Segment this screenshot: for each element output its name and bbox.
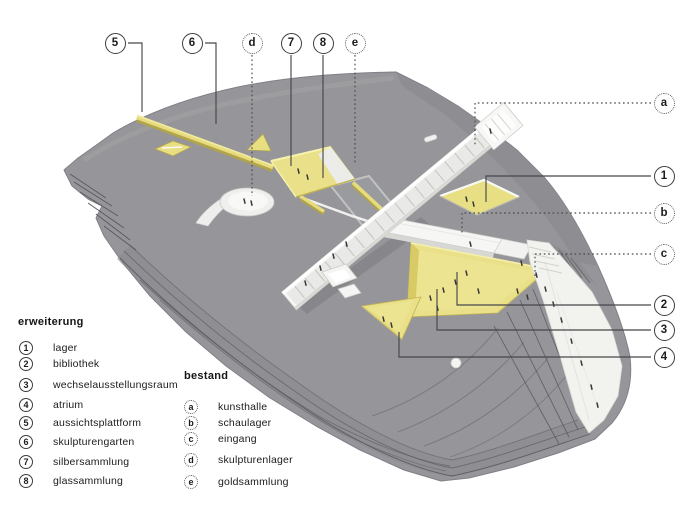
- legend-label-skulpturengarten: skulpturengarten: [53, 436, 134, 448]
- legend-item-silbersammlung: 7silbersammlung: [19, 455, 129, 469]
- legend-item-skulpturenlager: dskulpturenlager: [184, 453, 293, 467]
- callout-3-label: 3: [661, 324, 667, 336]
- legend-item-kunsthalle: akunsthalle: [184, 400, 267, 414]
- legend-label-silbersammlung: silbersammlung: [53, 456, 129, 468]
- callout-5: 5: [105, 33, 126, 54]
- legend-heading-erweiterung: erweiterung: [18, 316, 84, 328]
- legend-key-8: 8: [19, 474, 33, 488]
- callout-b: b: [654, 203, 675, 224]
- callout-c-label: c: [661, 248, 667, 260]
- callout-8: 8: [313, 33, 334, 54]
- legend-key-b: b: [184, 416, 198, 430]
- legend-label-bibliothek: bibliothek: [53, 358, 99, 370]
- callout-6: 6: [182, 33, 203, 54]
- callout-2-label: 2: [661, 299, 667, 311]
- callout-a-label: a: [661, 97, 667, 109]
- legend-key-e: e: [184, 475, 198, 489]
- legend-item-atrium: 4atrium: [19, 398, 83, 412]
- legend-item-lager: 1lager: [19, 341, 77, 355]
- legend-label-atrium: atrium: [53, 399, 83, 411]
- callout-8-label: 8: [320, 37, 326, 49]
- legend-item-bibliothek: 2bibliothek: [19, 357, 99, 371]
- callout-b-label: b: [660, 207, 667, 219]
- callout-5-label: 5: [112, 37, 118, 49]
- legend-item-schaulager: bschaulager: [184, 416, 271, 430]
- callout-c: c: [654, 244, 675, 265]
- callout-2: 2: [654, 295, 675, 316]
- callout-e-label: e: [352, 37, 358, 49]
- legend-key-2: 2: [19, 357, 33, 371]
- callout-d-label: d: [248, 37, 255, 49]
- legend-label-skulpturenlager: skulpturenlager: [218, 454, 293, 466]
- legend-label-eingang: eingang: [218, 433, 257, 445]
- legend-key-5: 5: [19, 416, 33, 430]
- legend-key-4: 4: [19, 398, 33, 412]
- callout-e: e: [345, 33, 366, 54]
- legend-label-wechselausstellungsraum: wechselausstellungsraum: [53, 379, 178, 391]
- legend-label-schaulager: schaulager: [218, 417, 271, 429]
- callout-d: d: [242, 33, 263, 54]
- legend-item-wechselausstellungsraum: 3wechselausstellungsraum: [19, 378, 178, 392]
- legend-key-1: 1: [19, 341, 33, 355]
- legend-label-goldsammlung: goldsammlung: [218, 476, 289, 488]
- legend-item-skulpturengarten: 6skulpturengarten: [19, 435, 134, 449]
- site-diagram: 5 6 d 7 8 e a 1 b c 2 3 4 erweiterung 1l…: [0, 0, 700, 508]
- legend-key-c: c: [184, 432, 198, 446]
- legend-item-goldsammlung: egoldsammlung: [184, 475, 289, 489]
- callout-4-label: 4: [661, 351, 667, 363]
- callout-7-label: 7: [288, 37, 294, 49]
- callout-4: 4: [654, 347, 675, 368]
- legend-item-glassammlung: 8glassammlung: [19, 474, 123, 488]
- callout-a: a: [654, 93, 675, 114]
- axonometric-illustration: [0, 0, 700, 508]
- legend-heading-bestand: bestand: [184, 370, 228, 382]
- legend-key-3: 3: [19, 378, 33, 392]
- callout-6-label: 6: [189, 37, 195, 49]
- legend-label-aussichtsplattform: aussichtsplattform: [53, 417, 141, 429]
- legend-key-a: a: [184, 400, 198, 414]
- legend-key-d: d: [184, 453, 198, 467]
- callout-3: 3: [654, 320, 675, 341]
- legend-label-lager: lager: [53, 342, 77, 354]
- legend-item-eingang: ceingang: [184, 432, 257, 446]
- legend-label-glassammlung: glassammlung: [53, 475, 123, 487]
- callout-1: 1: [654, 166, 675, 187]
- legend-item-aussichtsplattform: 5aussichtsplattform: [19, 416, 141, 430]
- legend-key-6: 6: [19, 435, 33, 449]
- callout-1-label: 1: [661, 170, 667, 182]
- callout-7: 7: [281, 33, 302, 54]
- legend-label-kunsthalle: kunsthalle: [218, 401, 267, 413]
- legend-key-7: 7: [19, 455, 33, 469]
